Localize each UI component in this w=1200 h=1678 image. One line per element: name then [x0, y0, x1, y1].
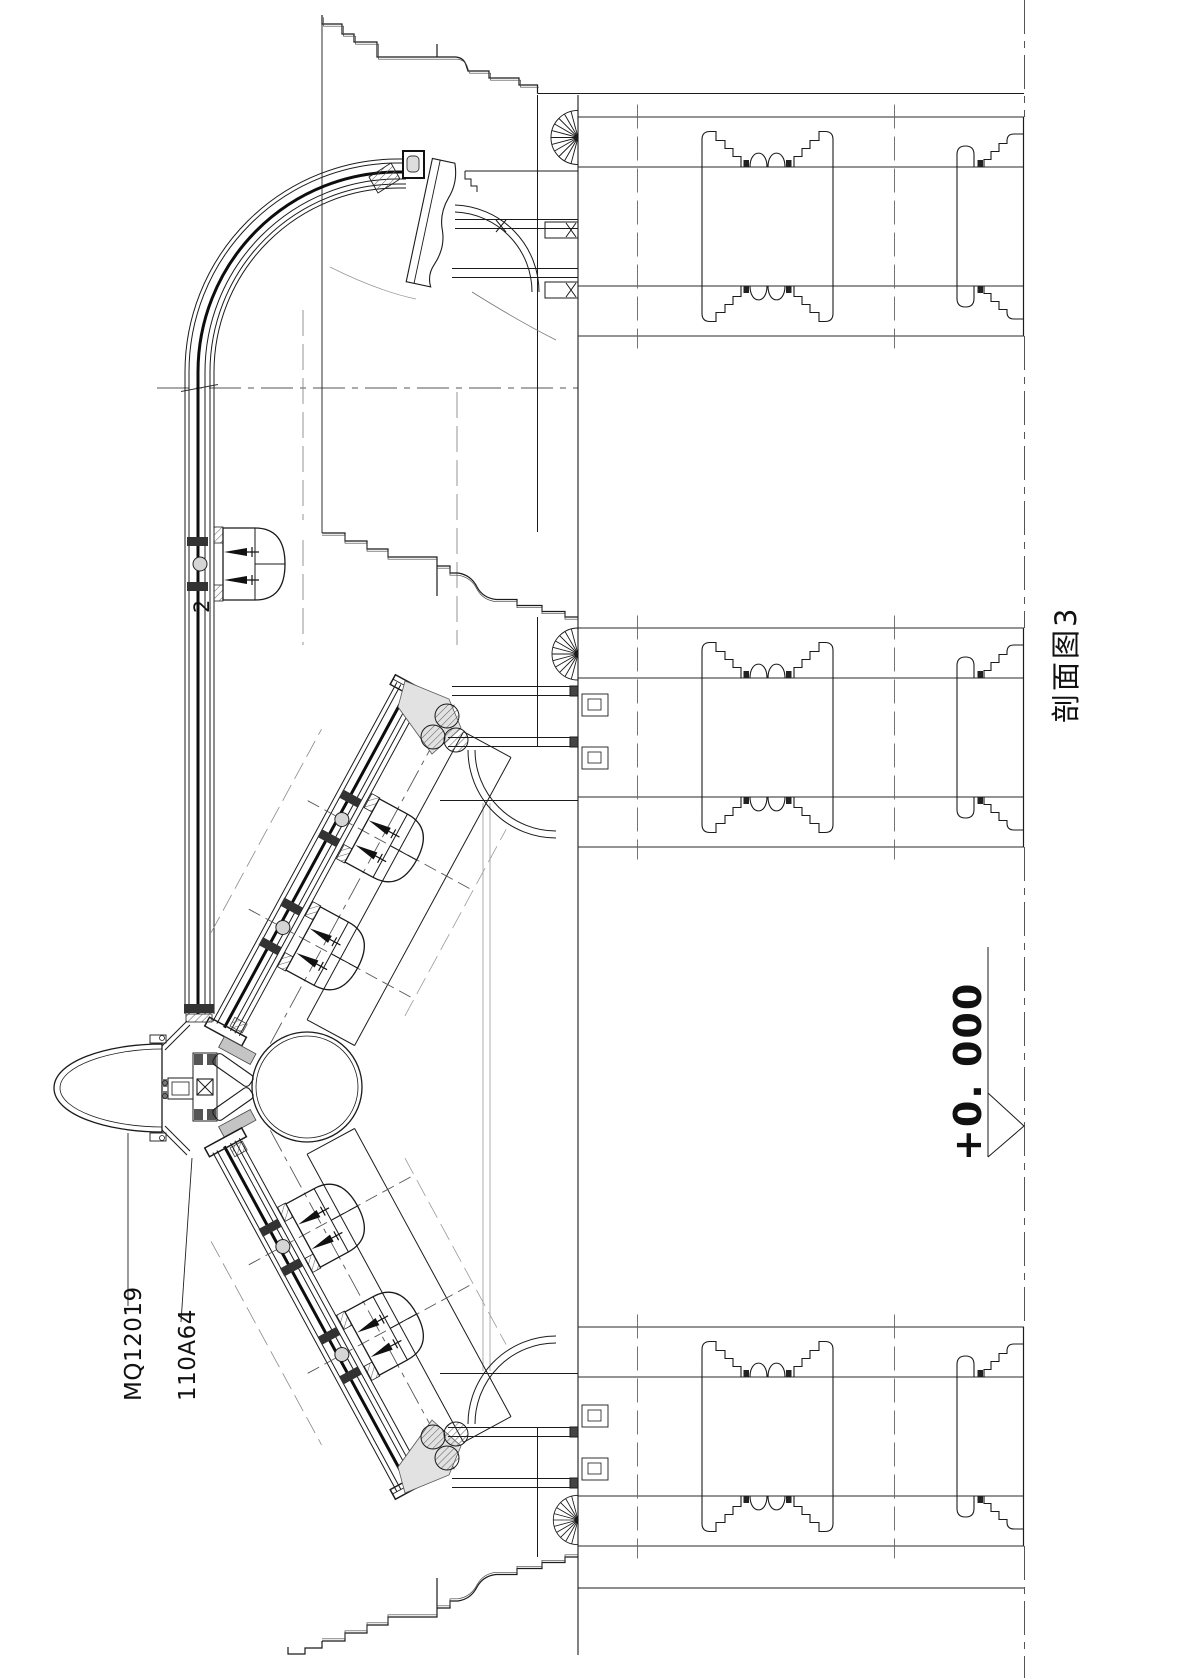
sloped-glazing-lower — [205, 1128, 511, 1499]
window-band-top — [578, 105, 1024, 349]
label-curtainwall-code: MQ12019 — [121, 1286, 147, 1401]
shell-ornaments — [551, 110, 578, 1544]
steel-tube-circle — [252, 1032, 362, 1142]
window-band-bottom — [578, 1315, 1024, 1559]
nose-cone — [54, 1044, 162, 1132]
label-elevation-value: +0. 000 — [946, 982, 990, 1161]
glazing-top-cap — [369, 151, 424, 193]
apex-hub — [162, 1053, 217, 1121]
connection-middle — [398, 681, 608, 838]
elevation-marker — [988, 947, 1024, 1157]
apex-assembly — [54, 1004, 362, 1157]
glazing-end-pad — [184, 1004, 214, 1013]
vertical-mullion — [187, 527, 285, 601]
drawing-sheet: MQ12019 110A64 2 +0. 000 剖面图3 — [0, 0, 1200, 1678]
cornice-bottom — [288, 1555, 578, 1654]
cornice-top — [322, 15, 539, 94]
drawing-title: 剖面图3 — [1049, 606, 1083, 723]
cornice-middle — [322, 533, 578, 619]
sloped-glazing-upper — [205, 675, 511, 1046]
cad-canvas: MQ12019 110A64 2 +0. 000 剖面图3 — [0, 0, 1200, 1678]
leader-110a64 — [181, 1158, 192, 1322]
label-section-number: 2 — [190, 600, 214, 613]
label-profile-code: 110A64 — [175, 1309, 201, 1401]
connection-bottom — [398, 1336, 608, 1493]
head-connection-top — [330, 171, 578, 340]
window-band-middle — [578, 616, 1024, 860]
